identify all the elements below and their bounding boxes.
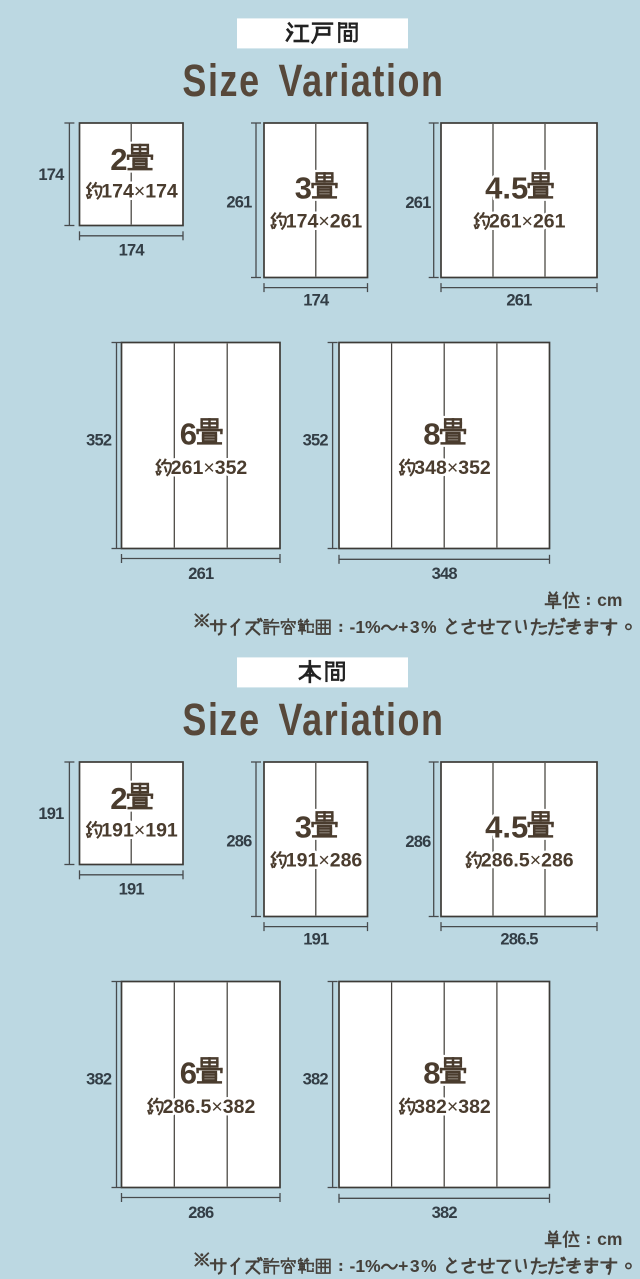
svg-text:174×261: 174×261 xyxy=(286,211,363,233)
svg-text:2: 2 xyxy=(110,142,127,177)
svg-text:-1%: -1% xyxy=(350,1256,382,1276)
svg-text:174: 174 xyxy=(38,166,65,184)
svg-text:+3%: +3% xyxy=(398,617,438,637)
svg-text:191: 191 xyxy=(303,931,329,949)
svg-text:174: 174 xyxy=(119,242,146,260)
svg-text:191×286: 191×286 xyxy=(286,850,363,872)
svg-text:348×352: 348×352 xyxy=(414,457,491,479)
svg-text:174: 174 xyxy=(303,292,330,310)
svg-text:352: 352 xyxy=(86,431,112,449)
svg-text:286.5×286: 286.5×286 xyxy=(481,850,574,872)
svg-text:6: 6 xyxy=(180,417,197,452)
svg-text:+3%: +3% xyxy=(398,1256,438,1276)
svg-text:382×382: 382×382 xyxy=(414,1096,491,1118)
svg-text:4.5: 4.5 xyxy=(485,171,528,206)
svg-text:261: 261 xyxy=(405,194,431,212)
svg-text:8: 8 xyxy=(423,1056,440,1091)
svg-text:191: 191 xyxy=(38,805,64,823)
svg-text:382: 382 xyxy=(303,1070,329,1088)
svg-text:3: 3 xyxy=(295,810,312,845)
svg-text:261: 261 xyxy=(226,194,252,212)
svg-text:348: 348 xyxy=(432,565,458,583)
svg-text:286.5×382: 286.5×382 xyxy=(163,1096,256,1118)
svg-text:261: 261 xyxy=(506,292,532,310)
svg-text:174×174: 174×174 xyxy=(101,180,178,202)
svg-text:382: 382 xyxy=(432,1204,458,1222)
svg-text:4.5: 4.5 xyxy=(485,810,528,845)
svg-text:3: 3 xyxy=(295,171,312,206)
svg-text:8: 8 xyxy=(423,417,440,452)
svg-text:2: 2 xyxy=(110,781,127,816)
svg-text:cm: cm xyxy=(597,1229,622,1249)
svg-text:-1%: -1% xyxy=(350,617,382,637)
svg-text:261×261: 261×261 xyxy=(489,211,566,233)
svg-text:191: 191 xyxy=(119,881,145,899)
svg-text:261×352: 261×352 xyxy=(171,457,248,479)
svg-text:286.5: 286.5 xyxy=(500,931,538,949)
svg-text:382: 382 xyxy=(86,1070,112,1088)
svg-text:Size Variation: Size Variation xyxy=(182,55,444,106)
svg-text:cm: cm xyxy=(597,590,622,610)
svg-text:352: 352 xyxy=(303,431,329,449)
svg-text:286: 286 xyxy=(405,833,431,851)
svg-text:261: 261 xyxy=(188,565,214,583)
svg-text:191×191: 191×191 xyxy=(101,819,178,841)
svg-text:286: 286 xyxy=(226,833,252,851)
svg-text:6: 6 xyxy=(180,1056,197,1091)
svg-text:Size Variation: Size Variation xyxy=(182,694,444,745)
svg-text:286: 286 xyxy=(188,1204,214,1222)
